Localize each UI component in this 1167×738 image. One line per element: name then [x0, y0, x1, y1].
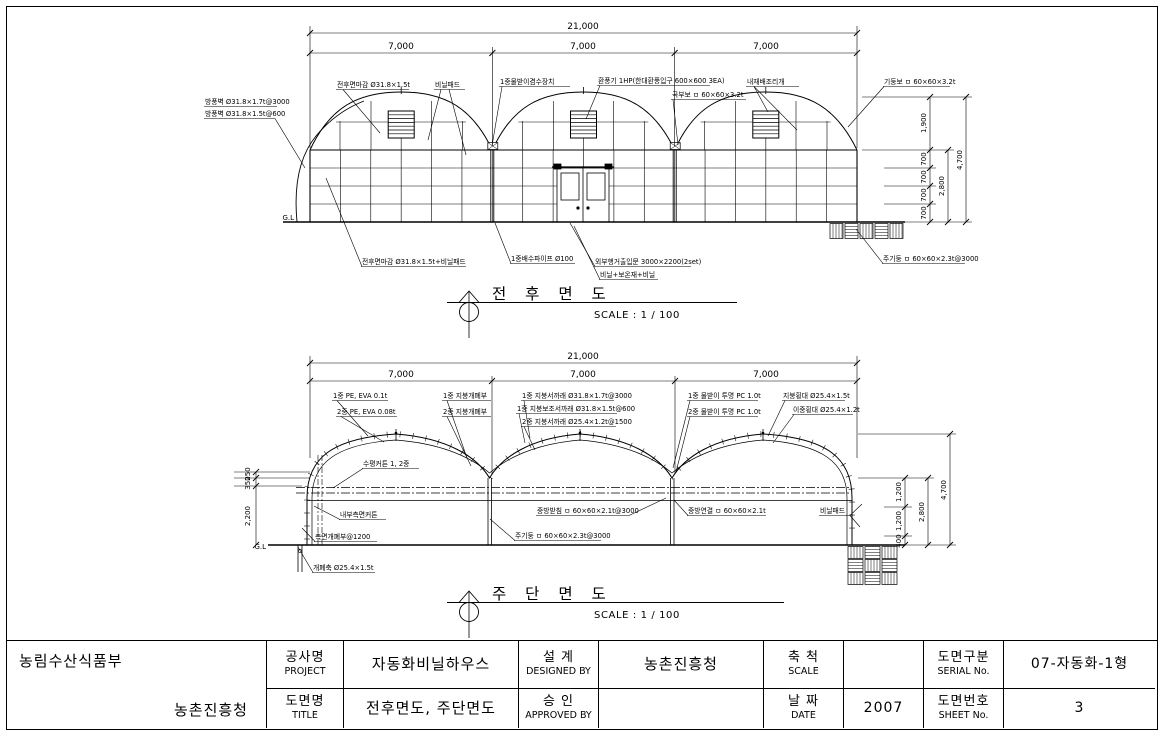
label-d1-vinyl-pad: 비닐패드	[435, 80, 460, 89]
scale-label-en: SCALE	[788, 667, 818, 678]
scale-value-cell	[843, 641, 923, 688]
d1-dim-total: 21,000	[567, 22, 599, 32]
drawing-sheet: 방풍벽 Ø31.8×1.7t@3000방풍벽 Ø31.8×1.5t@600전후면…	[0, 0, 1167, 738]
d2-dim-1200b: 1,200	[895, 511, 903, 531]
roof-vents	[388, 111, 779, 138]
scale-label-cell: 축 척 SCALE	[763, 641, 843, 688]
sheet-label-cell: 도면번호 SHEET No.	[923, 688, 1003, 728]
title-label-en: TITLE	[292, 711, 318, 722]
d2-dim-span3: 7,000	[753, 370, 779, 380]
label-d1-gutter-device: 1중물받이겸수장치	[500, 77, 554, 86]
org-agency: 농촌진흥청	[174, 702, 248, 719]
label-d2-roof-bar1: 지붕횡대 Ø25.4×1.5t	[783, 391, 850, 400]
label-d1-inner-vent: 내재배조리개	[747, 77, 785, 86]
d1-dim-2800: 2,800	[938, 176, 946, 196]
label-d2-side-open: 측면개폐부@1200	[315, 532, 370, 541]
project-value-cell: 자동화비닐하우스	[343, 641, 518, 688]
section-inner-skin	[312, 440, 847, 545]
title-value: 전후면도, 주단면도	[366, 700, 496, 717]
cross-section-view: 1중 PE, EVA 0.1t2중 PE, EVA 0.08t1중 지붕개폐부2…	[234, 352, 956, 638]
label-d2-side-curtain: 내부측면커튼	[340, 510, 378, 519]
approved-label-cell: 승 인 APPROVED BY	[518, 688, 598, 728]
d2-dim-total: 21,000	[567, 352, 599, 362]
view-title-cross-section: 주 단 면 도	[492, 585, 613, 603]
approved-label-kr: 승 인	[543, 695, 574, 710]
designed-label-en: DESIGNED BY	[526, 667, 591, 678]
d2-dim-1200a: 1,200	[895, 482, 903, 502]
title-label-cell: 도면명 TITLE	[266, 688, 343, 728]
date-value-cell: 2007	[843, 688, 923, 728]
door-bracket-right	[605, 164, 612, 169]
label-d2-gutter2: 2중 물받이 투명 PC 1.0t	[688, 407, 761, 416]
label-d2-roof-open1: 1중 지붕개폐부	[443, 391, 487, 400]
sheet-value: 3	[1075, 700, 1085, 716]
sheet-label-en: SHEET No.	[939, 711, 989, 722]
label-d1-windbreak2: 방풍벽 Ø31.8×1.5t@600	[205, 109, 285, 118]
d1-dim-4700: 4,700	[956, 150, 964, 170]
door-bracket-left	[554, 164, 561, 169]
front-elevation-view: 방풍벽 Ø31.8×1.7t@3000방풍벽 Ø31.8×1.5t@600전후면…	[204, 22, 979, 338]
label-d1-curve-beam: 곡부보 ㅁ 60×60×3.2t	[672, 91, 744, 99]
org-cell: 농림수산식품부 농촌진흥청	[7, 641, 266, 728]
view-title-2: 주 단 면 도 SCALE : 1 / 100	[447, 585, 784, 638]
serial-label-cell: 도면구분 SERIAL No.	[923, 641, 1003, 688]
d2-dim-span2: 7,000	[570, 370, 596, 380]
cad-drawing-area: 방풍벽 Ø31.8×1.7t@3000방풍벽 Ø31.8×1.5t@600전후면…	[0, 0, 1167, 641]
sliding-door[interactable]	[552, 164, 614, 222]
org-ministry: 농림수산식품부	[19, 653, 123, 670]
section-outer-skin	[307, 434, 852, 545]
designed-label-cell: 설 계 DESIGNED BY	[518, 641, 598, 688]
approved-value-cell	[598, 688, 763, 728]
serial-value-cell: 07-자동화-1형	[1003, 641, 1155, 688]
label-d2-roof-bar2: 이중횡대 Ø25.4×1.2t	[793, 405, 860, 414]
project-value: 자동화비닐하우스	[372, 656, 490, 673]
label-d1-door: 외부행거출입문 3000×2200(2set)	[595, 257, 702, 266]
label-d2-pe1: 1중 PE, EVA 0.1t	[333, 392, 388, 400]
label-d2-rafter2: 2중 지붕서까래 Ø25.4×1.2t@1500	[522, 417, 632, 426]
door-handle-right	[587, 207, 589, 209]
label-d2-mid-connect: 중방연결 ㅁ 60×60×2.1t	[688, 506, 766, 515]
sheet-label-kr: 도면번호	[938, 695, 990, 710]
label-d2-pe2: 2중 PE, EVA 0.08t	[337, 408, 396, 416]
date-value: 2007	[864, 700, 904, 716]
d2-dim-span1: 7,000	[388, 370, 414, 380]
label-d1-main-post: 주기둥 ㅁ 60×60×2.3t@3000	[883, 254, 979, 263]
d1-dim-700c: 700	[920, 188, 928, 201]
d2-dim-4700: 4,700	[940, 480, 948, 500]
d1-dim-1900: 1,900	[920, 113, 928, 133]
scale-note-1: SCALE : 1 / 100	[594, 310, 680, 321]
label-d1-column-beam: 기둥보 ㅁ 60×60×3.2t	[884, 77, 956, 86]
dims-and-annotations-2: 1중 PE, EVA 0.1t2중 PE, EVA 0.08t1중 지붕개폐부2…	[234, 356, 956, 585]
d2-dim-400: 400	[895, 534, 903, 547]
label-d1-drain-pipe: 1중배수파이프 Ø100	[511, 254, 573, 263]
label-d1-front-finish-pad: 전후면마감 Ø31.8×1.5t+비닐패드	[362, 257, 466, 266]
serial-label-kr: 도면구분	[938, 651, 990, 666]
date-label-kr: 날 짜	[788, 695, 819, 710]
d1-dim-700b: 700	[920, 170, 928, 183]
label-d2-rafter1: 1중 지붕서까래 Ø31.8×1.7t@3000	[522, 391, 632, 400]
label-d2-curtain: 수평커튼 1, 2중	[363, 459, 409, 468]
d1-dim-700a: 700	[920, 152, 928, 165]
sheet-value-cell: 3	[1003, 688, 1155, 728]
d1-dim-span2: 7,000	[570, 42, 596, 52]
label-d2-open-shaft: 개폐축 Ø25.4×1.5t	[313, 563, 374, 572]
title-value-cell: 전후면도, 주단면도	[343, 688, 518, 728]
scale-label-kr: 축 척	[788, 651, 819, 666]
label-d2-vinyl-pad: 비닐패드	[820, 506, 845, 515]
label-d1-windbreak1: 방풍벽 Ø31.8×1.7t@3000	[205, 97, 290, 106]
label-d1-front-finish: 전후면마감 Ø31.8×1.5t	[337, 80, 410, 89]
view-title-1: 전 후 면 도 SCALE : 1 / 100	[447, 285, 737, 338]
d2-dim-350: 350	[244, 476, 252, 489]
label-d2-main-post: 주기둥 ㅁ 60×60×2.3t@3000	[515, 531, 611, 540]
label-d2-gutter1: 1중 물받이 투명 PC 1.0t	[688, 391, 761, 400]
door-handle-left	[577, 207, 579, 209]
serial-value: 07-자동화-1형	[1031, 656, 1128, 672]
d2-ground-level-label: G.L	[254, 543, 266, 551]
scale-note-2: SCALE : 1 / 100	[594, 610, 680, 621]
label-d2-mid-support: 중방받침 ㅁ 60×60×2.1t@3000	[537, 506, 639, 515]
d1-ground-level-label: G.L	[282, 214, 294, 222]
project-label-en: PROJECT	[284, 667, 325, 678]
d1-dim-span3: 7,000	[753, 42, 779, 52]
d2-dim-2200: 2,200	[244, 506, 252, 526]
project-label-kr: 공사명	[286, 651, 325, 666]
project-label-cell: 공사명 PROJECT	[266, 641, 343, 688]
designed-label-kr: 설 계	[543, 651, 574, 666]
label-d1-fan: 환풍기 1HP(한대환풍입구 600×600 3EA)	[598, 76, 725, 85]
designed-value: 농촌진흥청	[644, 656, 718, 673]
title-block: 농림수산식품부 농촌진흥청 공사명 PROJECT 자동화비닐하우스 설 계 D…	[6, 640, 1158, 730]
date-label-en: DATE	[791, 711, 816, 722]
approved-label-en: APPROVED BY	[525, 711, 592, 722]
title-label-kr: 도면명	[286, 695, 325, 710]
serial-label-en: SERIAL No.	[937, 667, 989, 678]
label-d2-rafter1b: 1중 지붕보조서까래 Ø31.8×1.5t@600	[517, 404, 635, 413]
d1-dim-span1: 7,000	[388, 42, 414, 52]
d2-dim-2800: 2,800	[918, 502, 926, 522]
label-d2-roof-open2: 2중 지붕개폐부	[443, 407, 487, 416]
label-d1-vinyl-layers: 비닐+보온재+비닐	[600, 270, 655, 279]
date-label-cell: 날 짜 DATE	[763, 688, 843, 728]
d1-dim-700d: 700	[920, 206, 928, 219]
designed-value-cell: 농촌진흥청	[598, 641, 763, 688]
view-title-front-elevation: 전 후 면 도	[492, 285, 613, 303]
dims-and-annotations-1: 방풍벽 Ø31.8×1.7t@3000방풍벽 Ø31.8×1.5t@600전후면…	[204, 26, 979, 280]
